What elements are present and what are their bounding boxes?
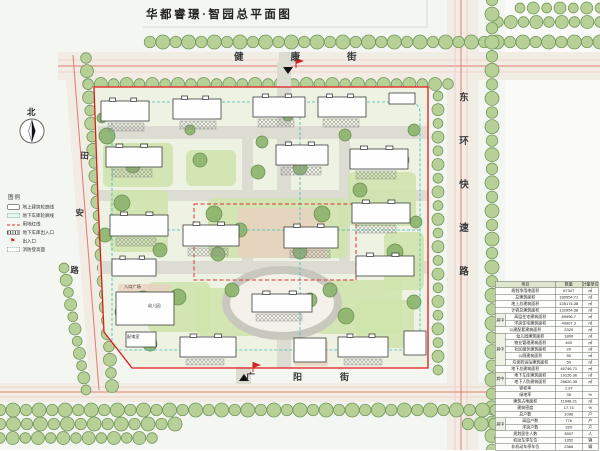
tree bbox=[314, 206, 330, 222]
south-street-label: 广阳街 bbox=[246, 370, 387, 383]
street-tree bbox=[554, 2, 566, 14]
street-tree bbox=[432, 131, 444, 143]
legend-item-label: 用地红线 bbox=[23, 221, 41, 228]
street-tree bbox=[453, 36, 464, 47]
building-footprint bbox=[173, 99, 221, 119]
building-core bbox=[116, 144, 123, 147]
legend-item-label: 地下车库出入口 bbox=[23, 229, 55, 236]
street-tree bbox=[486, 163, 497, 174]
street-tree bbox=[432, 104, 444, 116]
street-tree bbox=[7, 417, 21, 431]
tree bbox=[251, 165, 265, 179]
street-tree bbox=[81, 53, 92, 64]
lawn-patch bbox=[186, 150, 236, 186]
street-tree bbox=[147, 433, 158, 444]
building-core bbox=[347, 334, 353, 337]
building-footprint bbox=[112, 259, 156, 276]
street-tree bbox=[371, 403, 385, 417]
street-tree bbox=[438, 404, 449, 415]
street-tree bbox=[156, 35, 170, 49]
indicator-table-wrap: 项目数量计量单位规划净用地面积67347㎡总建筑面积180954.71㎡地上总建… bbox=[495, 281, 600, 451]
building-core bbox=[131, 98, 137, 101]
street-tree bbox=[57, 432, 70, 445]
street-tree bbox=[486, 219, 497, 230]
street-tree bbox=[259, 35, 273, 49]
street-tree bbox=[293, 403, 307, 417]
street-tree bbox=[433, 283, 443, 293]
legend-item: 出入口 bbox=[7, 238, 82, 245]
street-tree bbox=[432, 296, 444, 308]
building-footprint bbox=[106, 147, 162, 167]
street-tree bbox=[196, 36, 207, 47]
legend-title: 图例 bbox=[8, 193, 82, 201]
building-footprint bbox=[338, 337, 388, 357]
garage-ramp bbox=[356, 171, 396, 179]
internal-road bbox=[277, 62, 291, 208]
legend-item: 消防登高面 bbox=[7, 246, 82, 253]
building-core bbox=[203, 96, 209, 99]
street-tree bbox=[299, 36, 310, 47]
plan-label: 配电室 bbox=[127, 334, 140, 340]
building-core bbox=[141, 144, 148, 147]
street-tree bbox=[281, 404, 292, 415]
street-tree bbox=[46, 404, 57, 415]
street-tree bbox=[137, 403, 151, 417]
building-core bbox=[308, 142, 314, 145]
value-cell: 135174.38 bbox=[555, 301, 582, 308]
garage-ramp bbox=[258, 119, 294, 127]
building-core bbox=[190, 334, 197, 337]
economic-indicator-table: 项目数量计量单位规划净用地面积67347㎡总建筑面积180954.71㎡地上总建… bbox=[495, 281, 599, 451]
building-footprint bbox=[350, 149, 408, 169]
group-cell: 其中 bbox=[495, 314, 505, 327]
street-tree bbox=[114, 417, 128, 431]
building-core bbox=[317, 224, 323, 227]
building-core bbox=[139, 256, 144, 259]
street-tree bbox=[401, 36, 412, 47]
garage-ramp bbox=[323, 119, 359, 127]
street-tree bbox=[102, 418, 113, 429]
street-tree bbox=[108, 432, 121, 445]
plan-label: 入口广场 bbox=[124, 284, 141, 290]
legend-item: 地下车库出入口 bbox=[7, 229, 82, 236]
street-tree bbox=[542, 3, 552, 13]
building-core bbox=[285, 94, 291, 97]
street-tree bbox=[106, 380, 119, 393]
street-tree bbox=[58, 403, 72, 417]
building-footprint bbox=[180, 337, 236, 357]
street-tree bbox=[156, 418, 167, 429]
street-tree bbox=[82, 432, 95, 445]
building-footprint bbox=[276, 145, 328, 165]
street-tree bbox=[486, 79, 497, 90]
building-icon bbox=[7, 204, 20, 209]
building-core bbox=[360, 146, 367, 149]
street-tree bbox=[207, 35, 221, 49]
garage-ramp bbox=[256, 314, 302, 321]
building-core bbox=[386, 146, 393, 149]
street-tree bbox=[103, 353, 116, 366]
street-tree bbox=[530, 36, 541, 47]
building-core bbox=[215, 334, 222, 337]
drawing-title: 华都睿璟·智园总平面图 bbox=[146, 6, 292, 22]
street-tree bbox=[555, 16, 568, 29]
item-cell: 垃圾转运站建筑面积 bbox=[505, 359, 555, 366]
street-tree bbox=[359, 404, 370, 415]
street-tree bbox=[567, 35, 581, 49]
building-core bbox=[262, 94, 268, 97]
street-tree bbox=[433, 338, 443, 348]
street-tree bbox=[350, 36, 361, 47]
street-tree bbox=[177, 404, 188, 415]
street-tree bbox=[84, 403, 98, 417]
street-tree bbox=[443, 79, 454, 90]
street-tree bbox=[485, 120, 499, 134]
street-tree bbox=[133, 432, 146, 445]
building-core bbox=[366, 253, 373, 256]
street-tree bbox=[78, 372, 90, 384]
garage-ramp bbox=[108, 123, 144, 131]
street-tree bbox=[386, 404, 397, 415]
street-tree bbox=[450, 403, 464, 417]
garage-ramp bbox=[344, 359, 382, 365]
street-tree bbox=[581, 36, 592, 47]
street-tree bbox=[221, 36, 232, 47]
street-tree bbox=[182, 35, 196, 49]
internal-road bbox=[277, 336, 291, 368]
building-footprint bbox=[404, 331, 426, 355]
item-cell: 非机动车停车位 bbox=[495, 444, 555, 451]
tree bbox=[353, 183, 367, 197]
garage-ramp bbox=[112, 169, 152, 177]
street-tree bbox=[0, 404, 6, 415]
street-tree bbox=[96, 433, 107, 444]
street-tree bbox=[581, 16, 594, 29]
building-footprint bbox=[318, 97, 366, 117]
street-tree bbox=[99, 404, 110, 415]
value-cell: 2366 bbox=[555, 444, 582, 451]
building-core bbox=[218, 222, 225, 225]
street-tree bbox=[310, 35, 324, 49]
street-tree bbox=[432, 159, 444, 171]
north-street-label: 健康街 bbox=[234, 49, 404, 63]
street-tree bbox=[568, 3, 578, 13]
street-tree bbox=[413, 35, 427, 49]
legend: 图例 地上建筑轮廓线地下车库轮廓线用地红线地下车库出入口出入口消防登高面 bbox=[7, 193, 82, 255]
group-cell: 其中 bbox=[495, 333, 505, 366]
table-header-cell: 计量单位 bbox=[582, 281, 598, 288]
tree bbox=[114, 195, 130, 211]
street-tree bbox=[432, 350, 444, 362]
street-tree bbox=[485, 63, 499, 77]
building-core bbox=[392, 253, 399, 256]
plan-label: 幼儿园 bbox=[148, 303, 161, 309]
building-core bbox=[388, 200, 395, 203]
street-tree bbox=[324, 36, 335, 47]
street-tree bbox=[433, 118, 443, 128]
street-tree bbox=[267, 403, 281, 417]
street-tree bbox=[569, 17, 580, 28]
street-tree bbox=[433, 146, 443, 156]
street-tree bbox=[485, 7, 499, 21]
street-tree bbox=[433, 173, 443, 183]
building-footprint bbox=[389, 93, 415, 104]
ramp-icon bbox=[7, 230, 20, 234]
value-cell: 132954.38 bbox=[555, 307, 582, 314]
tree bbox=[225, 283, 239, 297]
legend-item-label: 消防登高面 bbox=[23, 246, 46, 253]
street-tree bbox=[307, 404, 318, 415]
legend-item-label: 出入口 bbox=[23, 238, 37, 245]
street-tree bbox=[6, 432, 19, 445]
building-core bbox=[289, 291, 296, 294]
tree bbox=[323, 283, 337, 297]
east-street-label: 东环快速路 bbox=[455, 92, 469, 310]
street-tree bbox=[69, 323, 81, 335]
building-core bbox=[193, 222, 200, 225]
legend-item-label: 地上建筑轮廓线 bbox=[23, 204, 55, 211]
street-tree bbox=[170, 36, 181, 47]
building-core bbox=[369, 334, 375, 337]
street-tree bbox=[273, 36, 284, 47]
street-tree bbox=[485, 35, 499, 49]
street-tree bbox=[427, 36, 438, 47]
tree bbox=[407, 295, 421, 309]
street-tree bbox=[504, 36, 515, 47]
building-core bbox=[294, 224, 300, 227]
garage-ramp bbox=[180, 121, 216, 129]
street-tree bbox=[345, 403, 359, 417]
street-tree bbox=[504, 16, 517, 29]
street-tree bbox=[485, 176, 499, 190]
street-tree bbox=[32, 403, 46, 417]
building-core bbox=[110, 98, 116, 101]
building-core bbox=[120, 212, 127, 215]
street-tree bbox=[485, 204, 499, 218]
building-core bbox=[285, 142, 291, 145]
street-tree bbox=[486, 135, 497, 146]
street-tree bbox=[284, 35, 298, 49]
legend-item: 地上建筑轮廓线 bbox=[7, 204, 82, 211]
building-core bbox=[263, 291, 270, 294]
street-tree bbox=[21, 418, 32, 429]
garage-ramp bbox=[116, 238, 156, 246]
street-tree bbox=[87, 417, 101, 431]
street-tree bbox=[581, 2, 593, 14]
street-tree bbox=[556, 36, 567, 47]
street-tree bbox=[387, 35, 401, 49]
street-tree bbox=[189, 403, 203, 417]
street-tree bbox=[73, 347, 85, 359]
north-arrow-icon bbox=[20, 119, 44, 143]
tree bbox=[206, 206, 222, 222]
street-tree bbox=[486, 191, 497, 202]
street-tree bbox=[485, 148, 499, 162]
tree bbox=[256, 136, 268, 148]
flag-icon bbox=[7, 238, 20, 243]
street-tree bbox=[486, 51, 497, 62]
street-tree bbox=[423, 403, 437, 417]
group-cell: 其中 bbox=[495, 372, 505, 385]
table-row: 非机动车停车位2366辆 bbox=[495, 444, 598, 451]
street-tree bbox=[336, 35, 350, 49]
street-tree bbox=[432, 323, 444, 335]
fire-icon bbox=[7, 247, 20, 252]
street-tree bbox=[121, 433, 132, 444]
street-tree bbox=[433, 201, 443, 211]
building-footprint bbox=[116, 292, 174, 325]
garage-icon bbox=[7, 213, 20, 218]
street-tree bbox=[485, 232, 499, 246]
street-tree bbox=[462, 418, 473, 429]
street-tree bbox=[432, 213, 444, 225]
street-tree bbox=[73, 404, 84, 415]
street-tree bbox=[433, 310, 443, 320]
street-tree bbox=[81, 385, 91, 395]
street-tree bbox=[71, 433, 82, 444]
street-tree bbox=[486, 107, 497, 118]
street-tree bbox=[474, 417, 488, 431]
street-tree bbox=[247, 36, 258, 47]
street-tree bbox=[255, 404, 266, 415]
street-tree bbox=[376, 36, 387, 47]
street-tree bbox=[20, 433, 31, 444]
street-tree bbox=[333, 404, 344, 415]
building-core bbox=[182, 96, 188, 99]
redline-icon bbox=[7, 224, 20, 225]
street-tree bbox=[45, 433, 56, 444]
north-arrow-label: 北 bbox=[27, 106, 36, 118]
street-tree bbox=[83, 79, 94, 90]
street-tree bbox=[319, 403, 333, 417]
building-core bbox=[348, 94, 354, 97]
street-tree bbox=[530, 16, 543, 29]
street-tree bbox=[516, 35, 530, 49]
garage-ramp bbox=[356, 225, 396, 233]
tree bbox=[408, 124, 420, 136]
garage-ramp bbox=[290, 250, 330, 258]
street-tree bbox=[77, 361, 87, 371]
street-tree bbox=[151, 404, 162, 415]
street-tree bbox=[129, 418, 140, 429]
street-tree bbox=[527, 2, 539, 14]
street-tree bbox=[6, 403, 20, 417]
street-tree bbox=[229, 404, 240, 415]
group-cell: 其中 bbox=[495, 418, 505, 431]
street-tree bbox=[0, 433, 5, 444]
building-footprint bbox=[284, 227, 338, 248]
street-tree bbox=[72, 336, 82, 346]
value-cell: 180954.71 bbox=[555, 294, 582, 301]
street-tree bbox=[412, 404, 423, 415]
street-tree bbox=[32, 432, 45, 445]
building-footprint bbox=[294, 338, 326, 362]
legend-item: 地下车库轮廓线 bbox=[7, 212, 82, 219]
street-tree bbox=[485, 91, 499, 105]
street-tree bbox=[20, 404, 31, 415]
street-tree bbox=[432, 241, 444, 253]
street-tree bbox=[433, 91, 443, 101]
street-tree bbox=[439, 35, 453, 49]
street-tree bbox=[433, 365, 443, 375]
street-tree bbox=[486, 22, 497, 33]
street-tree bbox=[362, 35, 376, 49]
street-tree bbox=[163, 403, 177, 417]
street-tree bbox=[429, 78, 442, 91]
street-tree bbox=[141, 417, 155, 431]
street-tree bbox=[464, 35, 478, 49]
street-tree bbox=[106, 368, 117, 379]
tree bbox=[193, 153, 207, 167]
street-tree bbox=[110, 403, 124, 417]
building-footprint bbox=[183, 225, 239, 246]
tree bbox=[339, 129, 351, 141]
site-plan-sheet: 华都睿璟·智园总平面图 健康街 广阳街 东环快速路 田安路 北 图例 地上建筑轮… bbox=[0, 0, 600, 450]
street-tree bbox=[397, 403, 411, 417]
building-footprint bbox=[101, 101, 149, 121]
unit-cell: 辆 bbox=[582, 444, 598, 451]
building-core bbox=[362, 200, 369, 203]
street-tree bbox=[168, 417, 182, 431]
garage-ramp bbox=[188, 248, 228, 256]
street-tree bbox=[215, 403, 229, 417]
street-tree bbox=[60, 417, 74, 431]
street-tree bbox=[486, 247, 497, 258]
street-tree bbox=[476, 403, 490, 417]
legend-item: 用地红线 bbox=[7, 221, 82, 228]
street-tree bbox=[241, 403, 255, 417]
street-tree bbox=[432, 186, 444, 198]
building-footprint bbox=[252, 294, 312, 312]
street-tree bbox=[0, 418, 6, 429]
street-tree bbox=[125, 404, 136, 415]
street-tree bbox=[233, 35, 247, 49]
building-footprint bbox=[356, 256, 414, 276]
street-tree bbox=[518, 17, 529, 28]
street-tree bbox=[485, 260, 499, 274]
building-footprint bbox=[253, 97, 305, 117]
street-tree bbox=[433, 228, 443, 238]
street-tree bbox=[433, 255, 443, 265]
street-tree bbox=[33, 417, 47, 431]
garage-ramp bbox=[281, 167, 321, 175]
street-tree bbox=[544, 17, 555, 28]
street-tree bbox=[144, 36, 155, 47]
street-tree bbox=[75, 418, 86, 429]
legend-item-label: 地下车库轮廓线 bbox=[23, 212, 55, 219]
building-footprint bbox=[110, 215, 168, 236]
garage-ramp bbox=[186, 359, 224, 365]
tree bbox=[338, 308, 354, 324]
street-tree bbox=[81, 65, 94, 78]
building-core bbox=[146, 212, 153, 215]
building-footprint bbox=[352, 203, 410, 223]
street-tree bbox=[432, 268, 444, 280]
street-tree bbox=[464, 404, 475, 415]
street-tree bbox=[48, 418, 59, 429]
street-tree bbox=[542, 35, 556, 49]
street-tree bbox=[486, 0, 497, 6]
street-tree bbox=[85, 105, 96, 116]
street-tree bbox=[203, 404, 214, 415]
building-core bbox=[327, 94, 333, 97]
street-tree bbox=[515, 3, 525, 13]
building-core bbox=[120, 256, 125, 259]
